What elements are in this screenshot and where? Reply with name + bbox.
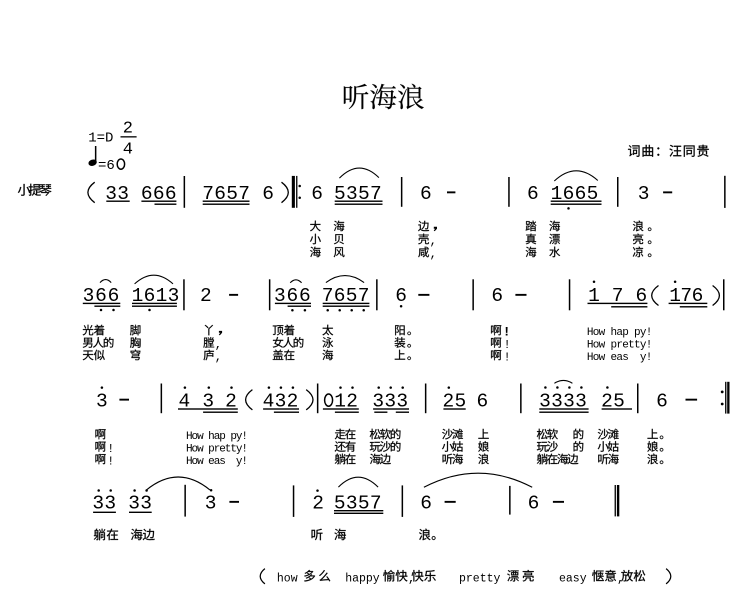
svg-text:how: how	[277, 572, 298, 585]
svg-text:1=D: 1=D	[88, 131, 113, 147]
svg-text:easy: easy	[559, 572, 587, 585]
svg-text:3: 3	[128, 493, 140, 515]
svg-text:6: 6	[527, 183, 539, 205]
svg-text:How pretty!: How pretty!	[186, 444, 248, 456]
svg-text:3: 3	[92, 493, 104, 515]
svg-text:6: 6	[528, 493, 540, 515]
svg-text:How eas y!: How eas y!	[587, 352, 653, 364]
svg-text:,: ,	[215, 351, 222, 365]
svg-text:,: ,	[430, 235, 437, 249]
svg-text:!: !	[504, 350, 511, 364]
svg-text:How pretty!: How pretty!	[587, 340, 653, 352]
svg-text:3: 3	[140, 493, 152, 515]
svg-text:2: 2	[123, 119, 133, 138]
svg-text:happy: happy	[345, 572, 380, 585]
svg-text:2: 2	[312, 493, 324, 515]
svg-text:3: 3	[205, 493, 217, 515]
svg-text:6: 6	[311, 183, 323, 205]
svg-text:6: 6	[491, 285, 503, 307]
svg-text:How hap py!: How hap py!	[587, 327, 653, 339]
svg-text:=6: =6	[98, 158, 115, 174]
svg-text:6: 6	[420, 183, 432, 205]
svg-text:3: 3	[104, 493, 116, 515]
svg-text:2: 2	[200, 285, 212, 307]
svg-text:!: !	[107, 454, 114, 468]
svg-text:6: 6	[656, 390, 668, 412]
svg-text:4: 4	[123, 141, 133, 160]
svg-text:6: 6	[420, 493, 432, 515]
svg-text:,: ,	[430, 248, 437, 262]
svg-text:How hap py!: How hap py!	[186, 431, 248, 443]
svg-text:6: 6	[477, 390, 489, 412]
svg-text:3: 3	[96, 390, 108, 412]
svg-text:6: 6	[395, 285, 407, 307]
svg-text:3: 3	[638, 183, 650, 205]
svg-text:6: 6	[262, 183, 274, 205]
svg-text:pretty: pretty	[459, 572, 501, 585]
svg-text:How eas y!: How eas y!	[186, 456, 248, 468]
